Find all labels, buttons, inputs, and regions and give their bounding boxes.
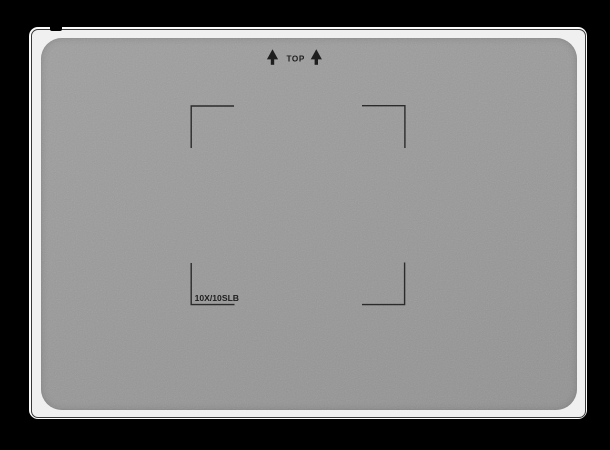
svg-text:10X/10SLB: 10X/10SLB xyxy=(195,293,239,303)
svg-text:TOP: TOP xyxy=(286,55,304,64)
